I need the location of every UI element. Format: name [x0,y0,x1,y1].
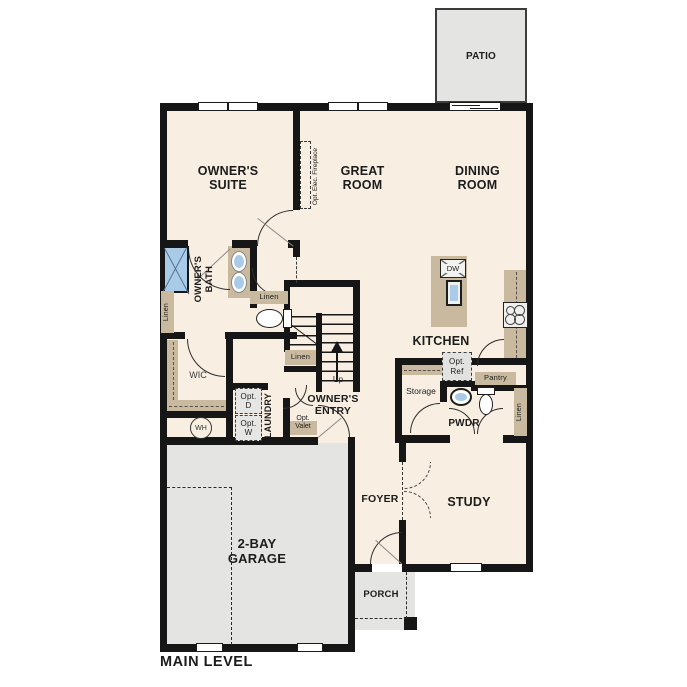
water-heater-icon: WH [190,417,212,439]
linen-closet: Linen [250,291,288,304]
wall [160,103,167,652]
shower-icon [163,246,189,293]
sink-icon [450,388,472,406]
cooktop-icon [503,302,528,328]
wall [293,103,300,210]
dishwasher-icon: DW [440,259,466,278]
stairs-up-arrow [331,341,343,352]
wall [399,435,406,462]
french-door-opening-dashed [402,462,403,520]
wall [160,411,226,418]
optional-dryer-box: Opt. D [235,388,262,414]
window [297,643,323,652]
water-heater-label: WH [195,425,207,432]
optional-fireplace-label: Opt. Elec. Fireplace [309,138,322,216]
room-label-wic: WIC [182,369,214,382]
wall [395,358,443,365]
cased-opening-dashed [296,257,297,283]
room-label-porch: PORCH [359,589,403,602]
linen-closet: Linen [285,350,316,365]
room-label-pwdr: PWDR [445,417,483,430]
linen-closet: Linen [514,388,527,436]
room-label-patio: PATIO [456,50,506,64]
room-label-garage: 2-BAY GARAGE [217,536,297,568]
window [358,102,388,111]
wall [353,280,360,392]
room-label-great-room: GREAT ROOM [325,162,400,194]
room-label-laundry: LAUNDRY [261,388,276,443]
fireplace-label: Opt. Elec. Fireplace [312,148,319,205]
optional-fridge-box: Opt. Ref [442,352,472,381]
window [196,643,223,652]
wic-shelf [167,400,226,411]
wall [348,437,355,652]
floor-plan: DW WH Opt. D Opt. W Opt. Ref Linen Linen… [0,0,687,687]
room-label-kitchen: KITCHEN [407,333,475,349]
room-label-study: STUDY [443,494,495,510]
window [228,102,258,111]
wall [526,103,533,572]
room-label-owners-bath: OWNER'S BATH [192,243,218,315]
linen-closet: Linen [161,291,174,333]
wall [348,564,372,572]
island-sink-icon [446,280,462,306]
wall [503,435,533,443]
dishwasher-label: DW [446,264,461,273]
wall [160,332,185,339]
optional-valet-label: Opt. Valet [288,411,318,435]
room-label-foyer: FOYER [358,492,402,506]
window [198,102,228,111]
toilet-icon [256,308,292,330]
room-label-owners-suite: OWNER'S SUITE [188,162,268,194]
plan-title: MAIN LEVEL [160,653,290,671]
storage-label: Storage [398,385,444,398]
wall [395,358,402,438]
window [450,563,482,572]
toilet-icon [476,387,498,417]
wall [160,644,355,652]
wall [388,103,450,111]
stairs-up-label: Up [327,374,349,386]
pantry-shelf: Pantry [475,372,516,385]
wall [284,366,317,372]
storage-shelf [402,365,442,375]
patio-sliding-door [449,102,501,111]
laundry-label: LAUNDRY [263,393,273,438]
linen-label: Linen [516,403,524,421]
wall [316,313,322,392]
room-label-dining-room: DINING ROOM [440,162,515,194]
optional-washer-box: Opt. W [235,415,262,441]
sink-icon [231,251,247,272]
owners-bath-label: OWNER'S BATH [194,256,216,302]
window [328,102,358,111]
sink-icon [231,272,247,293]
linen-label: Linen [163,303,171,321]
